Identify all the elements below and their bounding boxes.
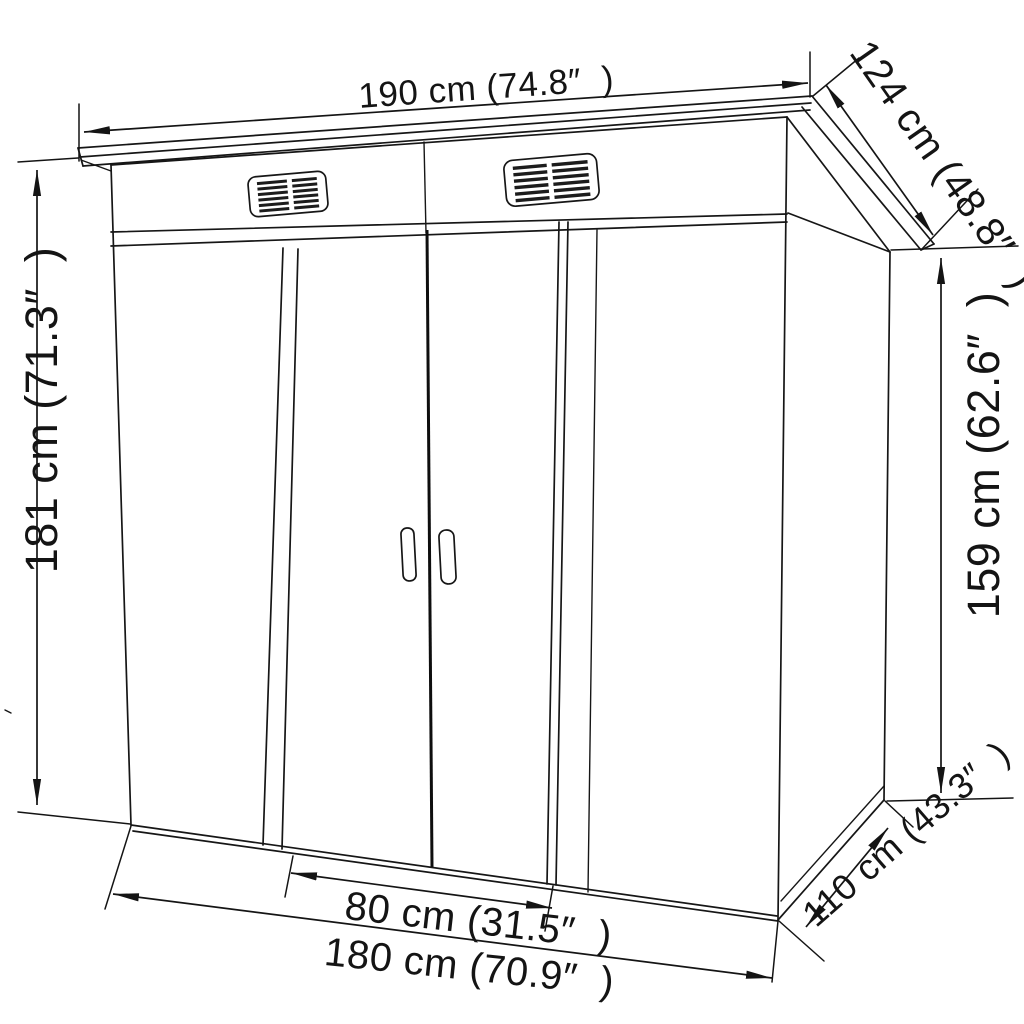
dim-label-base-depth: 110 cm (43.3″ ) [794, 733, 1017, 935]
diagram-canvas: 190 cm (74.8″ ) 181 cm (71.3″ ) 159 cm (… [0, 0, 1024, 1024]
right-door-handle [439, 530, 457, 585]
stray-mark [5, 710, 11, 713]
front-wall [111, 117, 787, 921]
dimension-lines [37, 83, 941, 978]
dim-label-width-top: 190 cm (74.8″ ) [357, 59, 615, 116]
dim-label-height-front: 181 cm (71.3″ ) [16, 247, 67, 574]
shed-dimension-diagram: 190 cm (74.8″ ) 181 cm (71.3″ ) 159 cm (… [0, 0, 1024, 1024]
left-vent-icon [247, 171, 328, 218]
right-vent-icon [503, 153, 600, 207]
shed-drawing [5, 96, 934, 921]
left-door-handle [401, 528, 417, 582]
dimension-labels: 190 cm (74.8″ ) 181 cm (71.3″ ) 159 cm (… [16, 33, 1024, 1005]
dimension-annotations: 190 cm (74.8″ ) 181 cm (71.3″ ) 159 cm (… [16, 33, 1024, 1005]
double-doors [263, 222, 597, 892]
dim-label-height-back: 159 cm (62.6″ ) [958, 292, 1009, 619]
side-wall [778, 117, 890, 920]
